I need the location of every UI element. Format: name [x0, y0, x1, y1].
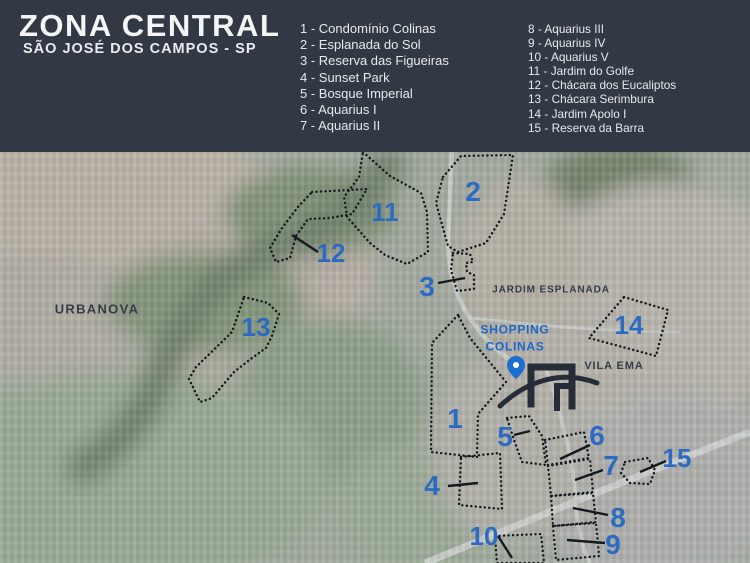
- legend-item: 5 - Bosque Imperial: [300, 86, 449, 102]
- region-number-label: 10: [470, 523, 499, 549]
- region-outline-5: [507, 416, 546, 465]
- region-outline-15: [621, 458, 655, 484]
- region-number-label: 13: [242, 314, 271, 340]
- region-number-label: 5: [497, 423, 513, 451]
- legend-item: 11 - Jardim do Golfe: [528, 64, 676, 78]
- legend-item: 6 - Aquarius I: [300, 102, 449, 118]
- legend-column-2: 8 - Aquarius III 9 - Aquarius IV 10 - Aq…: [528, 22, 676, 135]
- leader-line-3: [438, 278, 465, 283]
- legend-item: 10 - Aquarius V: [528, 50, 676, 64]
- legend-item: 2 - Esplanada do Sol: [300, 37, 449, 53]
- leader-line-12: [292, 235, 318, 252]
- region-outlines: [189, 152, 668, 563]
- region-number-label: 11: [371, 199, 399, 225]
- region-number-label: 9: [605, 531, 621, 559]
- region-outline-3: [451, 253, 474, 291]
- leader-line-9: [567, 540, 605, 543]
- legend-item: 8 - Aquarius III: [528, 22, 676, 36]
- region-number-label: 15: [663, 445, 692, 471]
- header: ZONA CENTRAL SÃO JOSÉ DOS CAMPOS - SP 1 …: [0, 0, 750, 152]
- leader-line-6: [560, 445, 590, 459]
- legend-item: 15 - Reserva da Barra: [528, 121, 676, 135]
- region-outline-7: [548, 459, 593, 496]
- page-title: ZONA CENTRAL: [19, 8, 280, 44]
- area-label-vila-ema: VILA EMA: [584, 360, 643, 372]
- region-number-label: 1: [447, 405, 463, 433]
- page-subtitle: SÃO JOSÉ DOS CAMPOS - SP: [23, 41, 257, 57]
- satellite-map: URBANOVA JARDIM ESPLANADA VILA EMA SHOPP…: [0, 152, 750, 563]
- leader-line-4: [448, 483, 478, 486]
- region-number-label: 2: [465, 178, 481, 206]
- region-number-label: 6: [589, 422, 605, 450]
- region-number-label: 3: [419, 273, 435, 301]
- legend-item: 12 - Chácara dos Eucaliptos: [528, 78, 676, 92]
- location-pin-icon: [507, 356, 525, 379]
- legend-item: 7 - Aquarius II: [300, 118, 449, 134]
- region-number-label: 7: [603, 452, 619, 480]
- legend-item: 13 - Chácara Serimbura: [528, 92, 676, 106]
- legend-item: 3 - Reserva das Figueiras: [300, 53, 449, 69]
- leader-line-7: [575, 470, 603, 480]
- area-label-shopping-colinas: SHOPPING COLINAS: [481, 322, 550, 357]
- legend-item: 4 - Sunset Park: [300, 70, 449, 86]
- leader-line-10: [498, 536, 512, 558]
- legend-item: 14 - Jardim Apolo I: [528, 107, 676, 121]
- area-label-jardim-esplanada: JARDIM ESPLANADA: [492, 285, 610, 296]
- leader-line-5: [514, 431, 530, 435]
- region-number-label: 12: [317, 240, 346, 266]
- legend-item: 1 - Condomínio Colinas: [300, 21, 449, 37]
- region-number-label: 14: [615, 312, 644, 338]
- legend-item: 9 - Aquarius IV: [528, 36, 676, 50]
- region-outline-4: [459, 453, 502, 509]
- infographic-frame: ZONA CENTRAL SÃO JOSÉ DOS CAMPOS - SP 1 …: [0, 0, 750, 563]
- region-number-label: 4: [424, 472, 440, 500]
- region-number-label: 8: [610, 504, 626, 532]
- region-outline-8: [551, 493, 596, 526]
- area-label-urbanova: URBANOVA: [55, 302, 140, 317]
- leader-line-8: [573, 508, 608, 515]
- region-outline-10: [495, 534, 544, 563]
- legend-column-1: 1 - Condomínio Colinas 2 - Esplanada do …: [300, 21, 449, 134]
